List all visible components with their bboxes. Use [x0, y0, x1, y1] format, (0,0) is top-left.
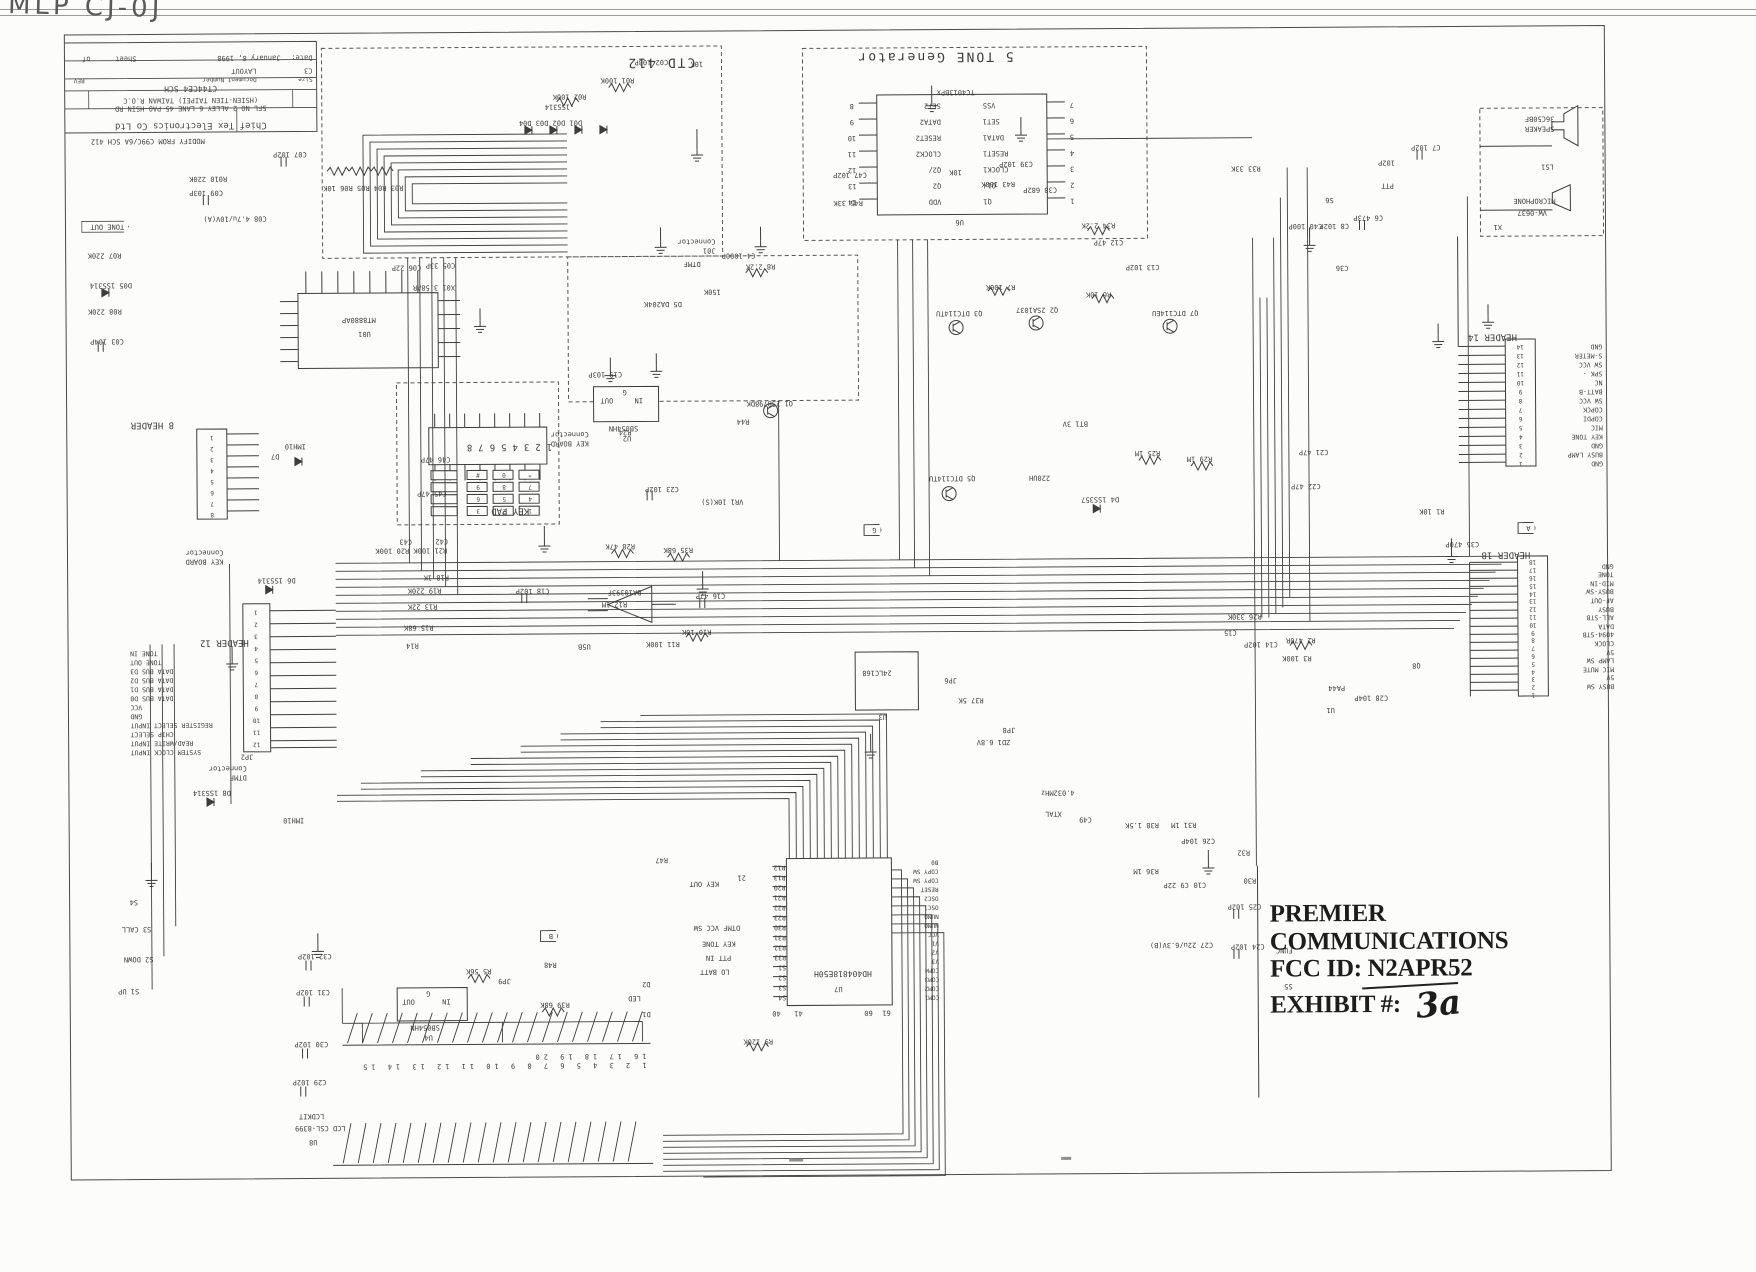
part-label: S4 [130, 898, 138, 907]
part-label: 220UH [1029, 473, 1050, 482]
part-label: C31 102P [296, 987, 330, 996]
part-label: R36 1M [1133, 866, 1158, 875]
part-label: C05 33P [426, 261, 456, 270]
part-label: C08 4.7u/10V(A) [203, 214, 266, 223]
mcu-sig-key-tone: KEY TONE [702, 939, 736, 948]
part-label: R15 68K [404, 623, 434, 632]
part-label: C4 1000P [722, 251, 756, 260]
part-label: R21 100K [413, 546, 447, 555]
company-address1: 5FL NO 2 ALLEY 6 LANE 45 PAO HSIN RD [65, 103, 317, 113]
part-label: C42 [435, 537, 448, 546]
part-label: Q7 DTC114EU [1152, 308, 1198, 317]
part-label: C03 104P [90, 337, 124, 346]
ic-u6-part: TC4013BPx [937, 87, 975, 96]
ic-u6-left-pin-numbers: 14 13 12 11 10 9 8 [843, 98, 862, 210]
part-label: R24 [619, 428, 632, 437]
part-label: C45 47P [417, 489, 447, 498]
part-label: R13 22K [408, 602, 438, 611]
ic-u4-out: OUT [402, 997, 415, 1006]
part-label: PTT [1381, 181, 1394, 190]
speaker-part-label: 36C50BF [1525, 114, 1555, 123]
part-label: U1 [1326, 705, 1334, 714]
header14-pin-numbers: 1 2 3 4 5 6 7 8 9 10 11 12 13 14 [1510, 342, 1531, 468]
header8-title: 8 HEADER [131, 418, 174, 430]
header12-ref: JP2 [241, 752, 254, 761]
part-label: R47 [655, 855, 668, 864]
part-label: C22 47P [1291, 481, 1321, 490]
sheet-label: Sheet [96, 55, 136, 63]
part-label: R12 1M [602, 600, 627, 609]
part-label: 10K [690, 59, 703, 68]
part-label: Q3 DTC114TU [936, 308, 982, 317]
part-label: S2 DOWN [124, 954, 154, 963]
part-label: C40 100P [1288, 221, 1322, 230]
speaker-label: SPEAKER [1525, 124, 1555, 133]
ic-u2-g: G [622, 388, 626, 397]
part-label: R28 47K [605, 541, 635, 550]
part-label: R08 220K [88, 307, 122, 316]
lcd-kit-label: LCDKIT [299, 1111, 324, 1120]
part-label: R19 220K [408, 586, 442, 595]
part-label: C10 [1193, 880, 1206, 889]
date-value: January 8, 1998 [170, 54, 280, 63]
part-label: XTAL [1045, 809, 1062, 818]
docnum-label: Document Number [137, 76, 257, 84]
part-label: C7 102P [1411, 143, 1441, 152]
size-value: C3 [283, 66, 313, 74]
stamp-exhibit: EXHIBIT #:3a [1270, 981, 1630, 1021]
header8-pin-numbers: 8 7 6 5 4 3 2 1 [203, 432, 222, 520]
part-label: Q8 [1412, 661, 1420, 670]
part-label: R31 1M [1171, 820, 1196, 829]
mcu-sig-lo-batt: LO BATT [700, 967, 730, 976]
microphone-part-label: VW-0637 [1517, 208, 1547, 217]
ic-u4-in: IN [442, 997, 450, 1006]
part-label: R26 330K [1228, 612, 1262, 621]
doc-title: CT44CE4 SCH [65, 83, 317, 94]
part-label: C30 102P [294, 1039, 328, 1048]
part-label: IMH10 [283, 816, 304, 825]
part-label: C16 47P [696, 591, 726, 600]
lcd-ref: U8 [309, 1137, 317, 1146]
part-label: Q2 2SA1037 [1016, 305, 1058, 314]
part-label: C18 102P [516, 586, 550, 595]
part-label: C36 [1336, 263, 1349, 272]
part-label: C38 682P [1023, 185, 1057, 194]
part-label: 4.032MHz [1041, 788, 1075, 797]
part-label: C43 [399, 537, 412, 546]
part-label: C39 102P [999, 159, 1033, 168]
ic-u4-g: G [426, 989, 430, 998]
part-label: C02 103P [634, 57, 668, 66]
part-label: R38 1.5K [1125, 820, 1159, 829]
part-label: C49 [1079, 815, 1092, 824]
part-label: BA10393F [608, 587, 642, 596]
part-label: R32 [1237, 848, 1250, 857]
part-label: R33 33K [1231, 164, 1261, 173]
ic-u01-ref: U01 [358, 329, 371, 338]
docnum-value: LAYOUT [137, 67, 257, 76]
part-label: C47 102P [833, 170, 867, 179]
part-label: C29 102P [293, 1077, 327, 1086]
microphone-label: MICROPHONE [1513, 196, 1555, 205]
modify-note: MODIFY FROM C99C/6A SCH 412 [91, 136, 205, 145]
part-label: 102P [1378, 158, 1395, 167]
part-label: D7 [271, 452, 279, 461]
header18-signals: BUSY SW 5V MIC MUTE LAMP SW 5V CLOCK 409… [1554, 562, 1615, 691]
part-label: D8 1SS314 [193, 788, 231, 797]
part-label: C9 22P [1163, 880, 1188, 889]
keypad-key[interactable]: 7 [517, 480, 543, 492]
part-label: X01 3.58AR [413, 283, 455, 292]
fcc-stamp: PREMIER COMMUNICATIONS FCC ID: N2APR52 E… [1270, 898, 1631, 1020]
header18-pin-numbers: 1 2 3 4 5 6 7 8 9 10 11 12 13 14 15 16 1… [1523, 558, 1544, 698]
part-label: D4 1SS357 [1081, 495, 1119, 504]
keypad-keys: 123 456 789 *0# [465, 468, 543, 516]
part-label: C46 47P [421, 455, 451, 464]
ic-u4-ref: U4 [424, 1033, 432, 1042]
part-label: PA44 [1328, 683, 1345, 692]
part-label: R8 2.2K [746, 262, 776, 271]
part-label: D1 [642, 1009, 650, 1018]
keypad-key[interactable]: 9 [465, 480, 491, 492]
part-label: C15 [1224, 628, 1237, 637]
mcu-sig-key-out: KEY OUT [689, 879, 719, 888]
flag-g: G [863, 524, 881, 536]
part-label: C21 47P [1299, 447, 1329, 456]
part-label: R1 10K [1419, 507, 1444, 516]
keypad-key[interactable]: 4 [517, 492, 543, 504]
part-label: C26 104P [1181, 836, 1215, 845]
stamp-company: PREMIER COMMUNICATIONS [1270, 898, 1630, 955]
part-label: R02 100K [553, 92, 587, 101]
keyboard-connector-label: KEY BOARD Connector [185, 548, 223, 566]
part-label: R010 220K [189, 174, 227, 183]
scan-artifact-mark [789, 1158, 803, 1161]
part-label: S6 [1325, 195, 1333, 204]
mcu-pin-60: 60 [864, 1008, 872, 1017]
part-label: R30 [1243, 876, 1256, 885]
part-label: ZD1 6.8V [977, 737, 1011, 746]
keyboard-connector-label: KEY BOARD Connector [551, 430, 589, 448]
part-label: R10 10K [682, 627, 712, 636]
section-title-tone-generator: 5 TONE Generator [856, 47, 1013, 64]
part-label: C32 102P [298, 951, 332, 960]
ic-u7-left-pins: S4 S3 S2 S1 R33 R32 R31 R30 R23 R22 R21 … [761, 863, 786, 1003]
keyboard-connector-numbers: 12345678 [461, 440, 552, 452]
ic-u6-ref: U6 [955, 217, 963, 226]
part-label: R3 100K [1282, 653, 1312, 662]
ic-u6-left-pin-names: VDD Q2 Q2/ CLOCK2 RESET2 DATA2 SET2 [881, 98, 942, 210]
company-name: Chief Tex Electronics Co Ltd [65, 119, 317, 131]
tone-out-flag: TONE OUT [81, 221, 129, 233]
part-label: C12 47P [1094, 237, 1124, 246]
ic-u2-in: IN [635, 395, 643, 404]
part-label: R29 1M [1187, 454, 1212, 463]
part-label: IMH10 [285, 441, 306, 450]
part-label: U5B [578, 642, 591, 651]
title-block: Chief Tex Electronics Co Ltd 5FL NO 2 AL… [64, 41, 317, 133]
keypad-key[interactable]: 0 [491, 468, 517, 480]
ic-u6-right-pin-numbers: 1 2 3 4 5 6 7 [1063, 97, 1082, 209]
part-label: R7 100K [986, 282, 1016, 291]
part-label: C19 103P [588, 370, 622, 379]
part-label: C8 102P [1319, 221, 1349, 230]
size-label: Size [273, 75, 313, 82]
part-label: R34 2.2K [1081, 221, 1115, 230]
part-label: R48 [544, 960, 557, 969]
mcu-pin-40: 40 [772, 1009, 780, 1018]
handwritten-exhibit-number: 3a [1413, 984, 1462, 1026]
part-label: C27 22u/6.3V(B) [1150, 940, 1213, 949]
part-label: R03 R04 R05 R06 10K [323, 183, 403, 192]
part-label: R43 100K [981, 179, 1015, 188]
part-label: LED [628, 993, 641, 1002]
date-label: Date: [282, 53, 312, 61]
keypad-key[interactable]: # [465, 468, 491, 480]
header14-signals: GND BUSY LAMP GND KEY TONE MIC COPDI COP… [1542, 342, 1603, 468]
part-label: 10K [949, 167, 962, 176]
part-label: S3 CALL [122, 924, 152, 933]
part-label: C07 102P [273, 149, 307, 158]
part-label: D05 1SS314 [90, 281, 132, 290]
scanned-schematic-page: MLP CJ-0J [0, 0, 1756, 1272]
part-label: R11 100K [646, 639, 680, 648]
lcd-pin-numbers: 1 2 3 4 5 6 7 8 9 10 11 12 13 14 15 16 1… [347, 1051, 647, 1070]
part-label: R20 100K [375, 546, 409, 555]
part-label: C23 102P [645, 484, 679, 493]
mcu-pin-41: 41 [794, 1008, 802, 1017]
part-label: C6 473P [1353, 213, 1383, 222]
microphone-ref: X1 [1493, 222, 1501, 231]
keypad-key[interactable]: * [517, 468, 543, 480]
keypad-key[interactable]: 2 [491, 504, 517, 516]
keypad-key[interactable]: 5 [491, 492, 517, 504]
header12-title: HEADER 12 [200, 636, 249, 648]
dtmf-connector-label: DTMF Connector [209, 764, 247, 782]
ic-u3-part: 24LC168 [862, 668, 892, 677]
part-label: R37 5K [958, 695, 983, 704]
part-label: JP6 [944, 676, 957, 685]
keypad-key[interactable]: 3 [465, 504, 491, 516]
ic-u4-part: SB054HN [410, 1023, 440, 1032]
part-label: JP8 [1003, 725, 1016, 734]
scan-artifact-mark [1061, 1157, 1071, 1160]
part-label: C14 102P [1244, 640, 1278, 649]
part-label: R2 470R [1286, 635, 1316, 644]
part-label: -1SS314 [545, 102, 575, 111]
part-label: R45 33K [833, 198, 863, 207]
rev-label: REV [65, 77, 85, 84]
part-label: D5 DA204K [644, 299, 682, 308]
ic-u3-ref: U3 [878, 712, 886, 721]
part-label: VR1 10K(S) [701, 497, 743, 506]
part-label: DTMF [684, 259, 701, 268]
keypad-key[interactable]: 8 [491, 480, 517, 492]
ic-u7-right-pins: COM1 COM2 COM3 COM4 V3 V2 V1 VCC NUM0 NU… [894, 858, 939, 1002]
company-address2: (HSIEN-TIEN TAIPEI) TAIWAN R.O.C [65, 95, 317, 105]
part-label: R07 220K [88, 251, 122, 260]
ic-u7-part: HD404818E50H [814, 968, 872, 978]
of-label: of [70, 55, 90, 63]
mcu-pin-61: 61 [882, 1008, 890, 1017]
part-label: D6 1SS314 [258, 576, 296, 585]
part-label: S1 UP [118, 987, 139, 996]
part-label: C28 104P [1354, 693, 1388, 702]
part-label: C06 22P [392, 263, 422, 272]
header12-signals: SYSTEM CLOCK INPUT READ/WRITE INPUT CHIP… [130, 648, 239, 757]
ic-u7-ref: U7 [834, 984, 842, 993]
part-label: Q1 2SB798DK [747, 399, 793, 408]
lcd-part-label: LCD CSL-8399 [295, 1123, 346, 1132]
flag-b: B [540, 930, 558, 942]
part-label: Q5 DTC114TU [929, 473, 975, 482]
part-label: R6 10K [1086, 290, 1111, 299]
header12-pin-numbers: 12 11 10 9 8 7 6 5 4 3 2 1 [247, 606, 266, 750]
part-label: D01 D02 D03 D04 [519, 118, 582, 127]
stamp-fcc-id: FCC ID: N2APR52 [1270, 953, 1630, 983]
part-label: R18 1K [424, 573, 449, 582]
part-label: R14 [406, 641, 419, 650]
part-label: C09 103P [189, 188, 223, 197]
mcu-sig-ptt-in: PTT IN [706, 953, 731, 962]
part-label: R5 56K [466, 966, 491, 975]
mcu-pin-21: 21 [737, 873, 745, 882]
part-label: BT1 3V [1063, 419, 1088, 428]
part-label: C35 470P [1445, 539, 1479, 548]
speaker-ref: LS1 [1541, 162, 1554, 171]
keypad-key[interactable]: 6 [465, 492, 491, 504]
part-label: J01 Connector [678, 237, 716, 255]
ic-u01-part: MT8880AP [342, 315, 376, 324]
part-label: R25 1M [1135, 448, 1160, 457]
part-label: R9 120K [743, 1037, 773, 1046]
part-label: R44 [737, 417, 750, 426]
schematic-sheet: Chief Tex Electronics Co Ltd 5FL NO 2 AL… [0, 0, 1756, 1272]
part-label: C25 102P [1228, 902, 1262, 911]
part-label: C24 102P [1231, 942, 1265, 951]
part-label: R35 68K [663, 545, 693, 554]
part-label: D2 [642, 979, 650, 988]
flag-a: A [1517, 522, 1535, 534]
part-label: R01 100K [601, 75, 635, 84]
part-label: C13 102P [1126, 262, 1160, 271]
part-label: JP9 [498, 976, 511, 985]
part-label: R39 68K [540, 1000, 570, 1009]
header14-title: HEADER 14 [1468, 330, 1517, 342]
mcu-sig-dtmf-vcc-sw: DTMF VCC SW [694, 923, 740, 932]
part-label: 150K [704, 287, 721, 296]
keypad-key[interactable]: 1 [517, 504, 543, 516]
ic-u2-out: OUT [601, 396, 614, 405]
